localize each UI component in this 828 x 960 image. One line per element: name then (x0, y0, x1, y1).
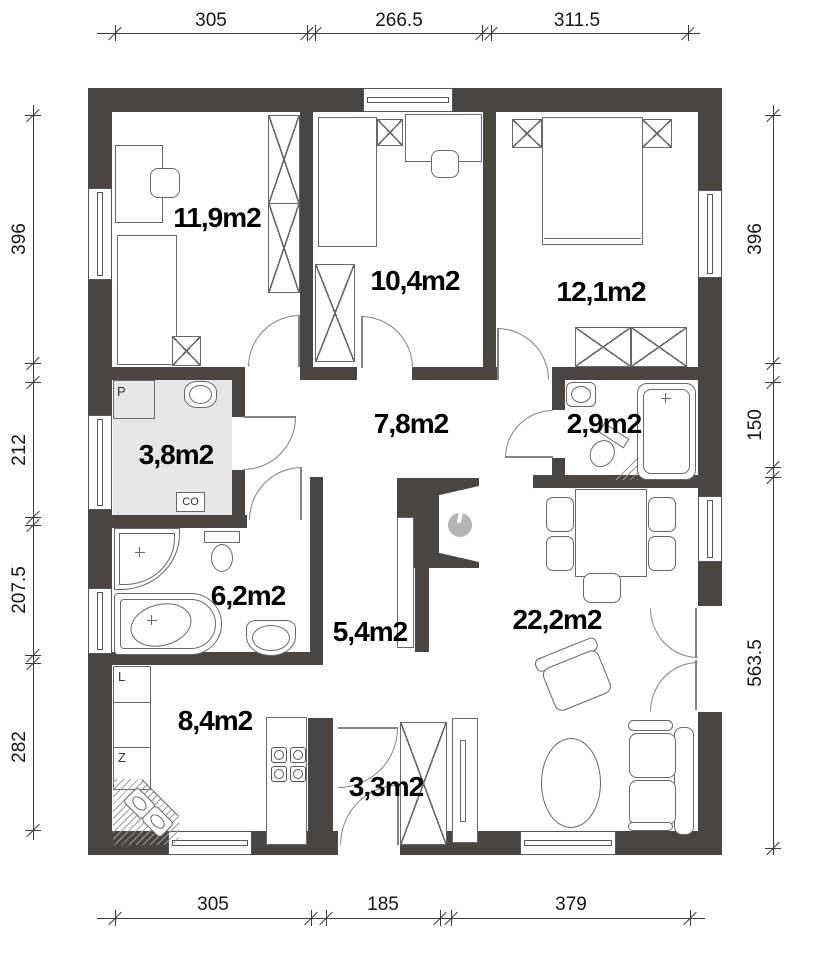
cabinet-icon (172, 336, 201, 366)
sofa-cushion (629, 733, 676, 778)
stove-burner-icon (271, 747, 287, 763)
chair (431, 150, 459, 178)
drain-icon (151, 615, 152, 625)
stove-burner-icon (271, 766, 287, 782)
room-label-living: 22,2m2 (513, 604, 602, 636)
window-glazing (707, 194, 713, 274)
pantry-label: Z (118, 750, 126, 765)
room-label-bathroom: 6,2m2 (211, 580, 285, 612)
dimension-right-2: 150 (745, 409, 767, 441)
nightstand-icon (512, 119, 542, 148)
bed-blanket-line (544, 238, 641, 239)
dimension-top-2: 266.5 (375, 10, 423, 32)
sofa-armrest (628, 822, 673, 831)
wall-interior (300, 367, 357, 380)
wall-interior (112, 367, 245, 380)
dimension-bottom-2: 185 (367, 894, 399, 916)
dining-chair (546, 497, 574, 532)
door-arc-bathroom (249, 467, 302, 520)
dimension-bottom-3: 379 (555, 894, 587, 916)
opening-terrace-door (698, 606, 722, 712)
sink-basin (571, 386, 591, 403)
door-leaf (298, 315, 300, 367)
window-glazing (97, 419, 103, 506)
wardrobe-icon (315, 264, 355, 362)
hall-cabinet-inner (460, 740, 466, 822)
room-label-corridor: 5,4m2 (333, 616, 407, 648)
floor-plan: 305 266.5 311.5 305 185 379 396 212 207.… (0, 0, 828, 960)
dimension-line-top (97, 33, 700, 34)
wall-interior (483, 112, 496, 380)
dining-chair (546, 536, 574, 571)
wardrobe-icon (575, 327, 631, 367)
fridge-label: L (118, 669, 125, 684)
double-bed (542, 117, 643, 245)
kitchen-counter-left (113, 666, 151, 790)
counter-divider (113, 747, 151, 748)
dining-chair (648, 497, 676, 532)
nightstand-icon (377, 119, 403, 146)
dimension-line-right (773, 105, 774, 855)
dining-chair (583, 573, 621, 603)
window-glazing (707, 500, 713, 558)
door-arc-wc (505, 410, 553, 458)
wall-interior (310, 477, 323, 665)
window-glazing (367, 97, 449, 103)
window-glazing (97, 192, 103, 276)
window-glazing (97, 592, 103, 650)
boiler-label: CO (176, 492, 205, 512)
sofa-cushion (629, 780, 676, 825)
counter-divider (113, 702, 151, 703)
wall-interior (308, 718, 333, 831)
dimension-left-4: 282 (9, 731, 31, 763)
drain-icon (147, 620, 157, 621)
room-label-bedroom1: 11,9m2 (173, 202, 260, 234)
nightstand-icon (642, 119, 672, 148)
door-arc-bedroom2 (361, 316, 413, 368)
door-arc-terrace-lower (650, 662, 698, 712)
sofa-back (674, 727, 694, 835)
window-glazing (524, 840, 612, 846)
chair (150, 168, 180, 198)
drain-icon (135, 552, 145, 553)
sofa-armrest (628, 720, 673, 731)
dimension-right-1: 396 (745, 223, 767, 255)
door-leaf (695, 608, 697, 658)
drain-icon (661, 398, 671, 399)
dimension-left-1: 396 (9, 223, 31, 255)
door-leaf (300, 467, 302, 520)
stove-burner-icon (290, 747, 306, 763)
wall-interior (552, 367, 698, 380)
dimension-top-3: 311.5 (554, 10, 600, 32)
corner-shower-inner (119, 533, 175, 585)
window-glazing (172, 840, 248, 846)
room-label-bedroom2: 10,4m2 (371, 265, 460, 297)
dining-chair (648, 536, 676, 571)
wall-interior (112, 515, 247, 528)
wardrobe-icon (268, 115, 300, 204)
dimension-right-3: 563.5 (745, 639, 767, 687)
toilet-tank (204, 531, 240, 543)
door-leaf (497, 328, 499, 380)
dimension-top-1: 305 (195, 10, 227, 32)
wall-interior (300, 112, 313, 380)
coffee-table (541, 738, 601, 828)
room-label-utility: 3,8m2 (139, 439, 213, 471)
room-label-wc: 2,9m2 (567, 408, 641, 440)
wall-interior (412, 367, 498, 380)
door-leaf (243, 416, 296, 418)
bed (318, 117, 377, 247)
bed (117, 235, 177, 365)
room-label-hall: 7,8m2 (374, 408, 448, 440)
washing-machine-label: P (117, 384, 126, 399)
toilet-bowl (211, 544, 233, 572)
dimension-left-2: 212 (9, 434, 31, 466)
flue-wall (415, 568, 429, 652)
door-leaf (505, 456, 553, 458)
dimension-left-3: 207.5 (9, 566, 31, 614)
wall-interior (552, 380, 565, 410)
door-arc-bedroom3 (497, 328, 549, 380)
door-leaf (338, 727, 398, 729)
room-label-bedroom3: 12,1m2 (557, 276, 646, 308)
door-arc-utility (243, 417, 296, 470)
dimension-bottom-1: 305 (197, 894, 229, 916)
door-leaf (695, 660, 697, 710)
bathtub-inner (643, 389, 690, 474)
door-leaf (361, 316, 363, 368)
wall-interior (232, 470, 245, 515)
door-arc-bedroom1 (248, 315, 300, 367)
door-arc-terrace-upper (650, 608, 698, 658)
wardrobe-icon (631, 327, 687, 367)
wardrobe-icon (268, 203, 300, 293)
dining-table (575, 489, 647, 577)
room-label-kitchen: 8,4m2 (178, 705, 252, 737)
room-label-entry: 3,3m2 (349, 771, 423, 803)
drain-icon (665, 393, 666, 403)
dimension-line-left (33, 105, 34, 840)
stove-burner-icon (290, 766, 306, 782)
drain-icon (139, 547, 140, 557)
sink-basin (189, 385, 212, 404)
dimension-line-bottom (97, 918, 705, 919)
armchair (533, 636, 617, 716)
sink-basin (252, 625, 290, 651)
wall-interior (232, 380, 245, 417)
